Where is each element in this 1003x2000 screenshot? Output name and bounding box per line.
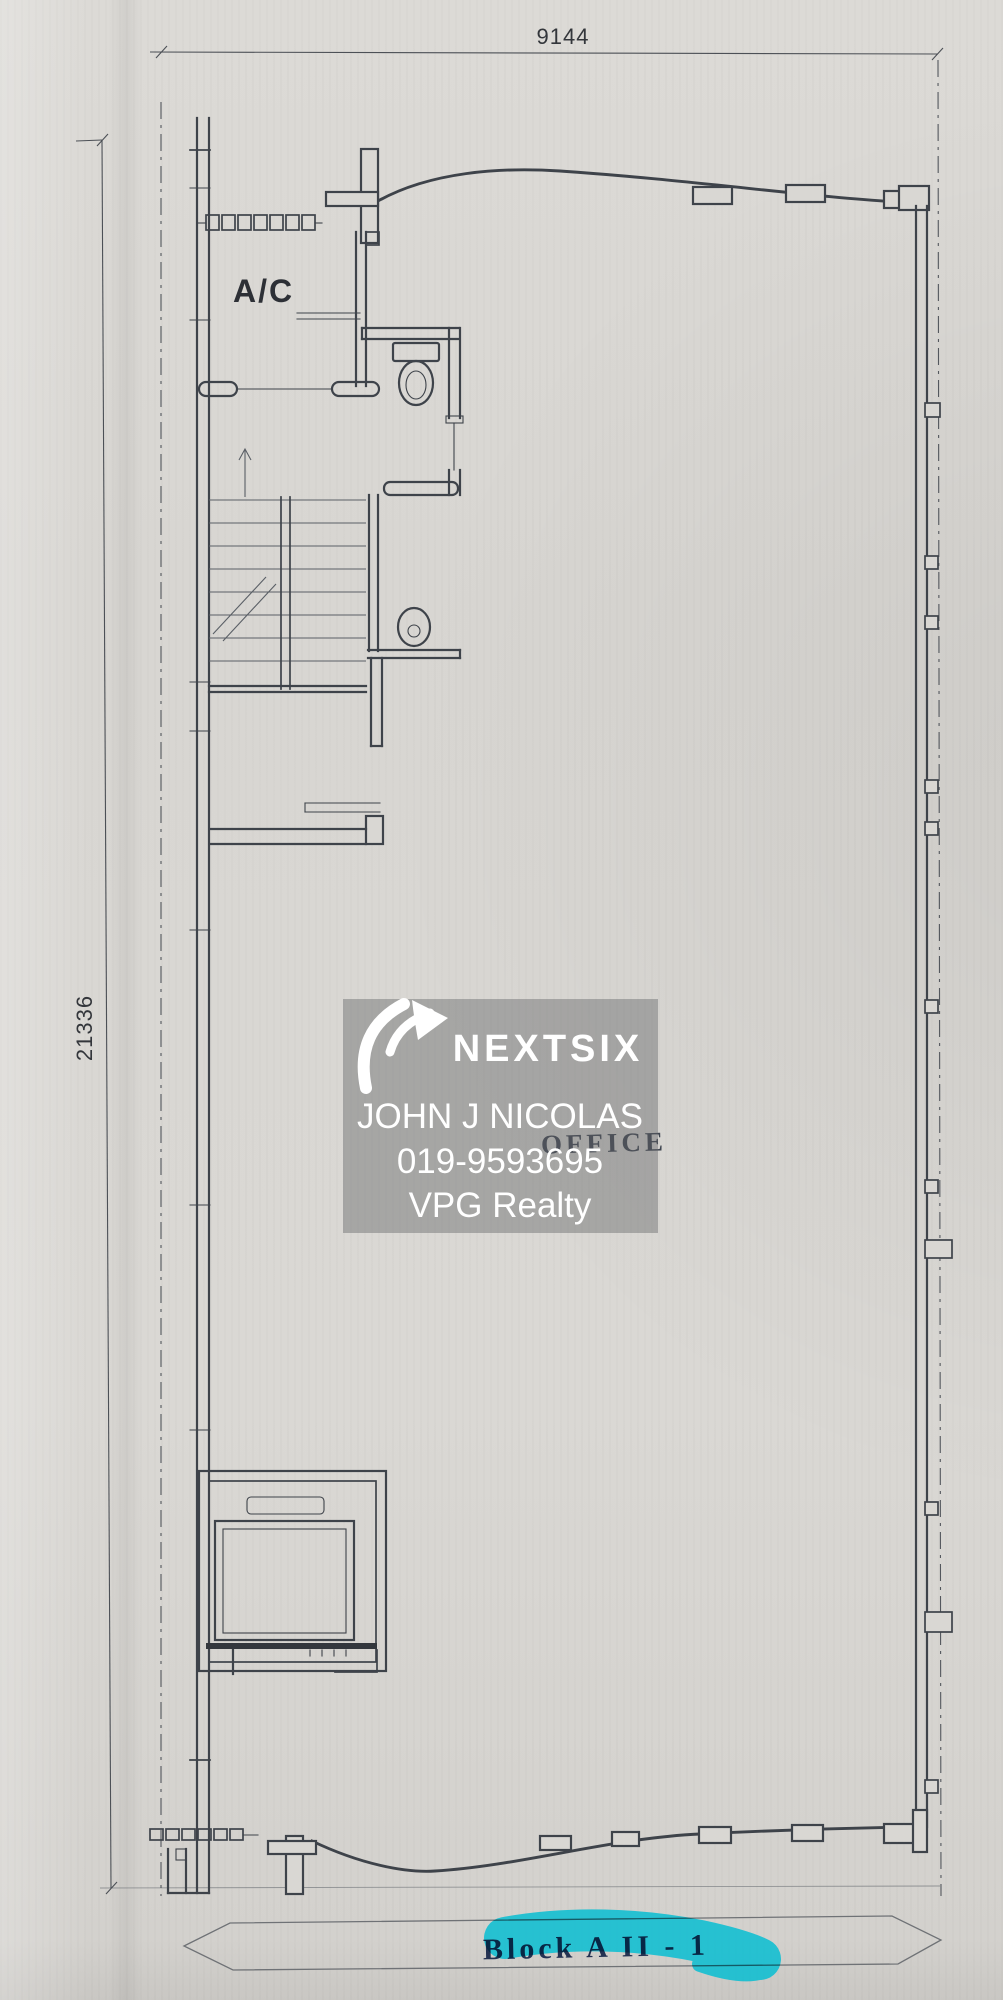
scanned-floor-plan-page: 9144 21336 bbox=[0, 0, 1003, 2000]
mid-partition-wall bbox=[210, 803, 383, 844]
stairs bbox=[209, 449, 366, 692]
watermark-agency: VPG Realty bbox=[409, 1186, 592, 1225]
stair-direction-arrow-icon bbox=[239, 449, 251, 497]
watermark-phone: 019-9593695 bbox=[397, 1142, 603, 1181]
louver-window-bottom bbox=[150, 1829, 258, 1840]
property-boundary-lines bbox=[161, 60, 941, 1896]
highlighter-mark bbox=[497, 1920, 763, 1973]
louver-window-top bbox=[197, 215, 322, 230]
toilet-icon bbox=[393, 343, 439, 405]
dimension-annotations: 9144 21336 bbox=[72, 24, 943, 1894]
column-bottom bbox=[268, 1836, 316, 1894]
agent-watermark: NEXTSIX JOHN J NICOLAS 019-9593695 VPG R… bbox=[343, 999, 658, 1233]
watermark-agent-name: JOHN J NICOLAS bbox=[357, 1097, 643, 1136]
watermark-brand: NEXTSIX bbox=[453, 1028, 644, 1070]
dimension-top-value: 9144 bbox=[537, 24, 590, 49]
column-top bbox=[326, 149, 378, 243]
dimension-left-value: 21336 bbox=[72, 995, 97, 1061]
bathrooms bbox=[199, 232, 463, 746]
title-ribbon: Block A II - 1 bbox=[184, 1916, 941, 1973]
lift-shaft bbox=[199, 1471, 386, 1674]
floor-plan-drawing: 9144 21336 bbox=[0, 0, 1003, 2000]
air-cond-label: A/C bbox=[233, 273, 294, 309]
sink-icon bbox=[398, 608, 430, 646]
